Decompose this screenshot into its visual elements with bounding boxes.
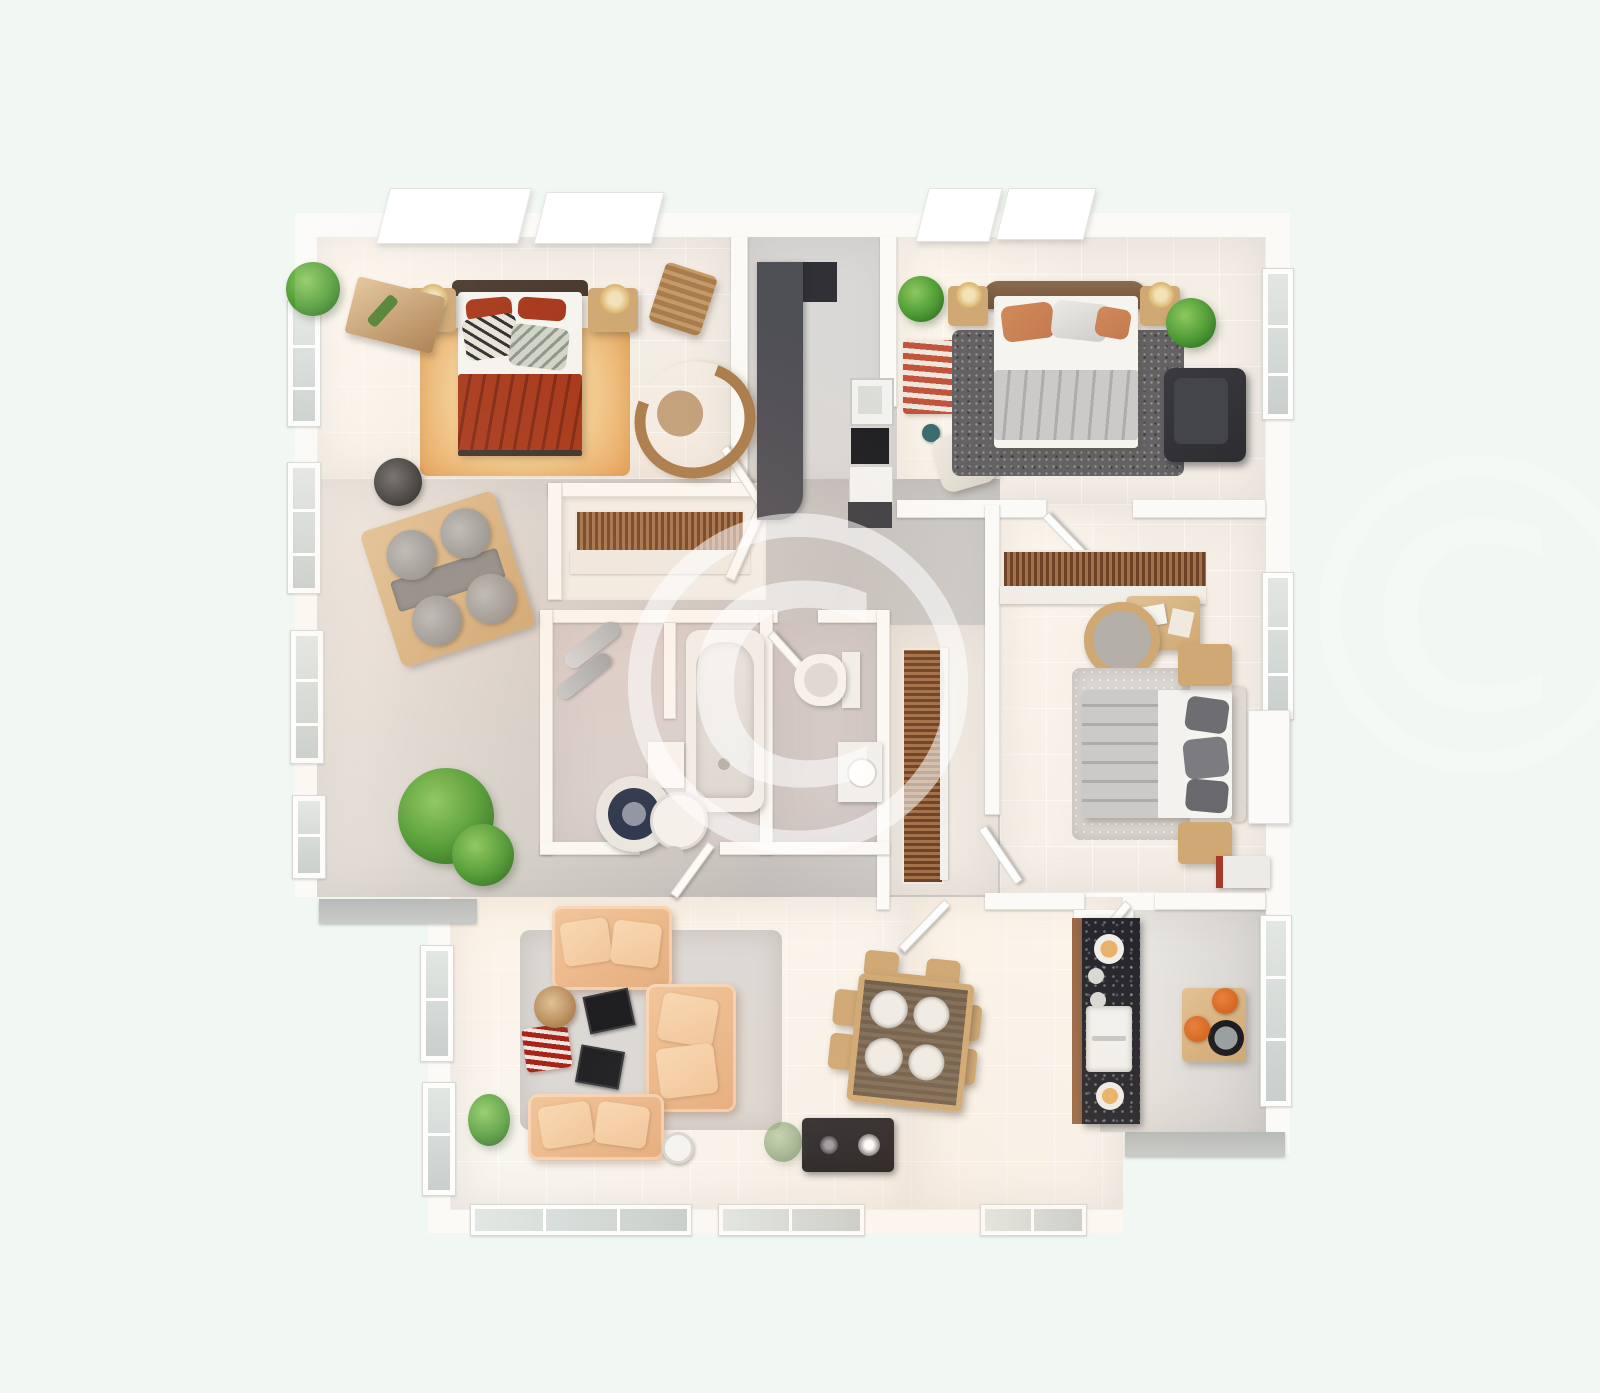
- wall: [720, 842, 890, 855]
- pillow-orange: [1000, 301, 1056, 343]
- balcony-ledge: [319, 899, 477, 923]
- orange-stool: [1184, 1016, 1210, 1042]
- cooktop: [851, 428, 889, 464]
- pillow-dark-gray: [1185, 778, 1230, 814]
- armchair-seat: [1174, 378, 1228, 444]
- wall: [985, 893, 1085, 910]
- tv-knob: [858, 1134, 880, 1156]
- slatted-shelving: [902, 648, 944, 884]
- wall: [1133, 500, 1266, 518]
- potted-plant: [1166, 298, 1216, 348]
- round-cup: [662, 1132, 694, 1164]
- round-basin: [650, 792, 708, 850]
- rug-red-striped: [521, 1023, 573, 1073]
- balcony-ledge: [1125, 1132, 1285, 1156]
- sofa-cushion: [593, 1101, 650, 1150]
- window: [292, 795, 326, 879]
- armchair-black: [1164, 368, 1246, 462]
- window: [287, 300, 321, 427]
- pillow-red: [517, 296, 566, 321]
- breakfast-table: [1182, 988, 1246, 1062]
- window-volume: [915, 188, 1002, 242]
- fridge: [850, 378, 894, 426]
- orange-stool: [1212, 988, 1238, 1014]
- sofa-cushion: [655, 1043, 719, 1100]
- basin: [847, 758, 877, 788]
- bed-footboard: [458, 450, 582, 456]
- window: [718, 1204, 865, 1236]
- wall: [897, 500, 1047, 518]
- wall: [985, 505, 1000, 815]
- tv-unit-black: [802, 1118, 894, 1172]
- window: [980, 1204, 1087, 1236]
- lamp-gold: [956, 282, 982, 308]
- tv-knob: [820, 1136, 838, 1154]
- dining-set: [822, 941, 988, 1114]
- pillow-dark-gray: [1184, 695, 1230, 735]
- bathtub: [686, 630, 764, 812]
- small-plate: [1088, 968, 1104, 984]
- sofa-cushion: [609, 919, 662, 969]
- bath-accessory: [664, 846, 684, 866]
- round-side-table: [534, 986, 576, 1028]
- round-tray: [1208, 1020, 1244, 1056]
- dark-counter: [757, 262, 803, 520]
- double-bed-gray-white: [1082, 690, 1232, 818]
- sofa-cushion: [656, 992, 719, 1049]
- window: [470, 1204, 692, 1236]
- window-volume: [534, 192, 665, 244]
- sofa-right: [646, 984, 736, 1112]
- shelf-edge: [940, 648, 948, 880]
- striped-runner: [903, 340, 955, 414]
- potted-plant: [286, 262, 340, 316]
- plate: [1094, 934, 1124, 964]
- toilet-bowl: [804, 663, 838, 697]
- pillow-orange: [1094, 305, 1133, 340]
- window: [422, 1082, 456, 1196]
- window: [287, 462, 321, 594]
- cabinet-red-edge: [1216, 856, 1270, 888]
- wall: [540, 610, 778, 623]
- window-volume: [376, 188, 532, 244]
- bathroom-partition: [664, 623, 676, 719]
- desk-papers: [1168, 608, 1195, 638]
- sofa-cushion: [537, 1100, 595, 1150]
- wardrobe-shelf: [570, 550, 750, 574]
- kitchen-sink: [1086, 1006, 1132, 1072]
- double-bed-gray: [994, 296, 1138, 448]
- vanity-basin: [838, 742, 882, 802]
- small-plate: [1090, 992, 1106, 1008]
- lamp-gold: [600, 284, 630, 314]
- counter-edge-wood: [1072, 918, 1082, 1124]
- double-bed-red: [458, 292, 582, 454]
- plate: [1096, 1082, 1124, 1110]
- bathtub-drain: [718, 758, 730, 770]
- copyright-watermark-partial: ©: [1258, 402, 1600, 842]
- counter-base-dark: [848, 502, 892, 528]
- blanket-gray: [994, 370, 1138, 440]
- wall: [1155, 893, 1266, 910]
- round-chair: [1084, 602, 1160, 678]
- plant-gray: [764, 1122, 802, 1162]
- rocking-chair-seat: [650, 383, 711, 444]
- decor-tray: [575, 1044, 625, 1089]
- bathtub-basin: [696, 642, 754, 798]
- wardrobe-panel: [1248, 710, 1290, 824]
- green-bottle: [366, 293, 399, 328]
- window: [1262, 572, 1294, 720]
- lamp-gold: [1148, 282, 1174, 308]
- potted-plant: [468, 1094, 510, 1146]
- pillow-patterned: [508, 323, 571, 372]
- sink-divider: [1092, 1036, 1126, 1041]
- wardrobe-slats: [575, 510, 745, 552]
- window: [1260, 915, 1292, 1107]
- floor-plan-render: © ©: [0, 0, 1600, 1393]
- window: [290, 630, 324, 764]
- counter-white: [849, 466, 893, 506]
- potted-tree: [452, 824, 514, 886]
- blanket-gray-folded: [1082, 690, 1158, 818]
- window: [1262, 268, 1294, 420]
- wardrobe-slats: [1002, 550, 1208, 590]
- dining-table: [846, 973, 975, 1112]
- cabinet-accent: [1216, 856, 1223, 888]
- sofa-top: [552, 906, 672, 990]
- sofa-bottom: [528, 1094, 664, 1160]
- wall: [548, 483, 766, 497]
- sofa-cushion: [559, 917, 613, 967]
- pillow-dark-gray: [1182, 736, 1230, 780]
- toilet: [794, 654, 846, 706]
- blanket-red: [458, 374, 582, 454]
- window: [420, 945, 454, 1062]
- window-volume: [996, 188, 1097, 240]
- nightstand-top: [1178, 644, 1232, 686]
- potted-plant: [898, 276, 944, 322]
- bed-headboard: [1232, 686, 1246, 822]
